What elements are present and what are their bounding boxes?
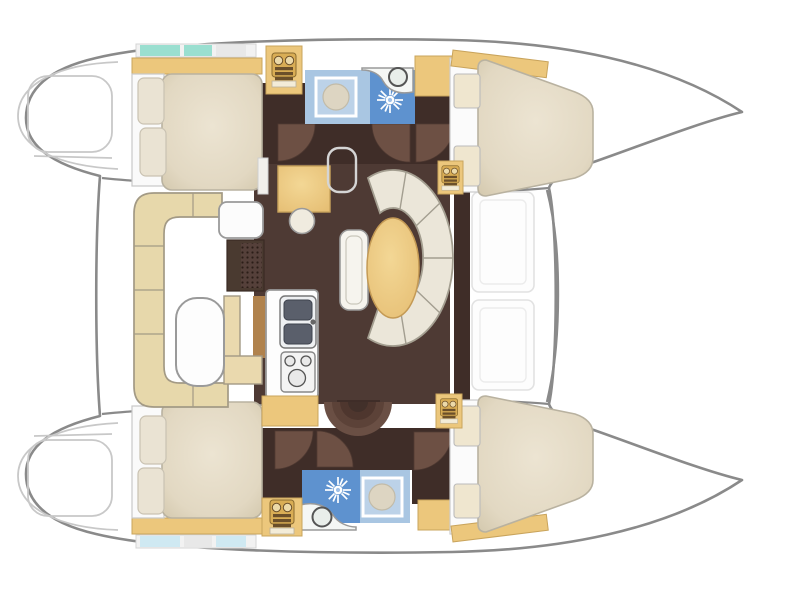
round-sink-icon (313, 508, 332, 527)
fwd-shelf-box (454, 74, 480, 108)
headboard-cabinet (132, 518, 262, 534)
fwd-shelf-box (454, 484, 480, 518)
sink-basin (284, 300, 312, 320)
faucet (310, 319, 315, 324)
deck-grate (241, 243, 262, 288)
stove-burner-icon (285, 356, 295, 366)
stove-burner-icon (301, 356, 311, 366)
coachroof-windows (472, 192, 534, 390)
nav-stool (290, 209, 315, 234)
round-sink-icon (389, 68, 407, 86)
companionway-steps-icon (442, 166, 459, 190)
cockpit-side-seat (224, 356, 262, 384)
double-berth (162, 402, 262, 518)
cockpit-table (176, 298, 224, 386)
window-hatch (216, 45, 246, 56)
stove-burner-icon (289, 370, 306, 387)
nav-table (278, 166, 330, 212)
pillow (138, 468, 164, 514)
window-hatch (184, 45, 212, 56)
galley (253, 290, 318, 426)
salon-seatback (340, 230, 368, 310)
cockpit-bench-back (224, 296, 240, 358)
port-aft-cabin (132, 44, 262, 190)
double-berth (162, 74, 262, 190)
window-hatch (140, 45, 180, 56)
galley-lower-cabinet (262, 396, 318, 426)
pillar (258, 158, 268, 194)
floorplan-svg (0, 0, 800, 600)
shower-tray-drain (369, 484, 395, 510)
salon-sliding-door (219, 202, 263, 238)
starboard-aft-cabin (132, 402, 262, 548)
pillow (140, 128, 166, 176)
companionway-steps-icon (272, 53, 296, 87)
window-hatch (140, 536, 180, 547)
shower-tray-drain (323, 84, 349, 110)
companionway-steps-icon (270, 500, 294, 534)
headboard-cabinet (132, 58, 262, 74)
salon-table (367, 218, 419, 318)
window-hatch (184, 536, 212, 547)
sink-basin (284, 324, 312, 344)
window-hatch (216, 536, 246, 547)
pillow (140, 416, 166, 464)
catamaran-floorplan-canvas (0, 0, 800, 600)
companionway-steps-icon (440, 399, 457, 423)
pillow (138, 78, 164, 124)
shower-starburst-icon (325, 477, 351, 503)
